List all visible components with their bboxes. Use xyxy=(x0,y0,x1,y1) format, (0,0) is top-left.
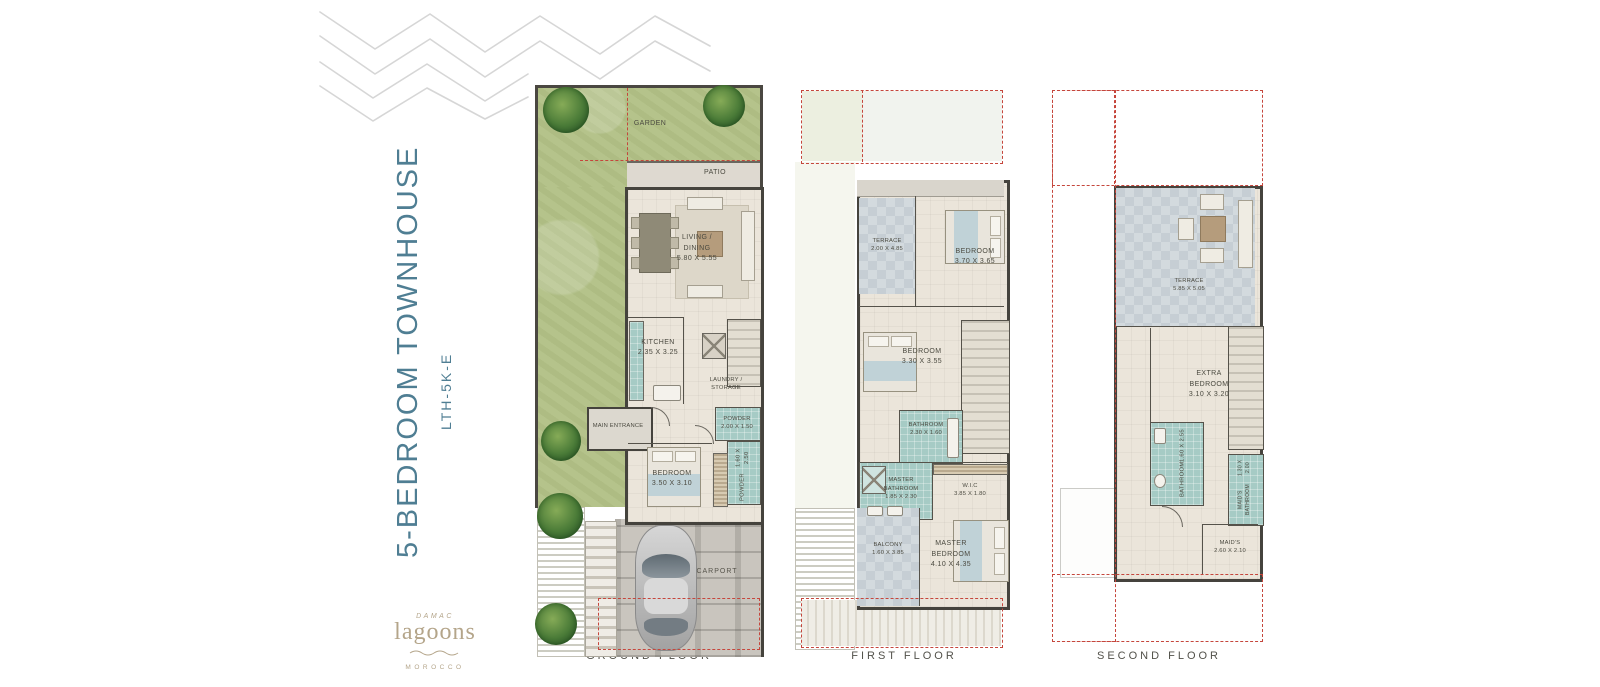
room-label: BEDROOM xyxy=(653,469,692,480)
stove-icon xyxy=(653,385,681,401)
chair-icon xyxy=(631,257,640,269)
room-dim: 2.60 X 2.10 xyxy=(1214,547,1246,555)
room-label: POWDER xyxy=(723,415,750,423)
stairs xyxy=(961,320,1010,454)
open-to-below-divider xyxy=(862,90,863,162)
bedroom1-wall-b xyxy=(859,306,1004,307)
room-dim: 3.10 X 3.20 xyxy=(1189,390,1229,401)
room-label: CARPORT xyxy=(696,567,737,578)
armchair-icon xyxy=(1200,194,1224,210)
roof-edge xyxy=(857,180,1004,197)
room-label: MASTER BATHROOM xyxy=(875,476,927,493)
damac-lagoons-logo: DAMAC lagoons MOROCCO xyxy=(390,613,480,671)
tree-icon xyxy=(535,603,577,645)
room-label: BATHROOM xyxy=(909,421,944,429)
dining-table-icon xyxy=(639,213,671,273)
page-title: 5-BEDROOM TOWNHOUSE xyxy=(392,168,425,558)
room-label: MAIN ENTRANCE xyxy=(593,422,644,430)
room-label: EXTRA BEDROOM xyxy=(1178,369,1240,390)
first-floor-plan: TERRACE 2.00 X 4.85 BEDROOM 3.70 X 3.65 … xyxy=(795,88,1013,650)
sink-icon xyxy=(867,506,883,516)
room-dim: 3.85 X 1.80 xyxy=(954,490,986,498)
room-label: KITCHEN xyxy=(641,338,675,349)
tree-icon xyxy=(537,493,583,539)
sofa-icon xyxy=(687,197,723,210)
room-label: BATHROOM xyxy=(1179,462,1188,497)
room-dim: 3.50 X 3.10 xyxy=(652,479,692,490)
plot-dashed-line-horizontal xyxy=(580,160,760,161)
room-label: MASTER BEDROOM xyxy=(921,539,981,560)
room-label: LIVING / DINING xyxy=(668,233,726,254)
plot-dashed-left xyxy=(1052,90,1116,642)
chair-icon xyxy=(631,237,640,249)
room-label: W.I.C xyxy=(962,482,977,490)
sink-icon xyxy=(1154,428,1166,444)
toilet-icon xyxy=(1154,474,1166,488)
room-label: GARDEN xyxy=(634,119,666,130)
room-dim: 3.70 X 3.65 xyxy=(955,257,995,268)
room-label: POWDER xyxy=(739,473,748,501)
room-dim: 1.60 X 2.55 xyxy=(1179,429,1188,462)
sofa-icon xyxy=(741,211,755,281)
kitchen-counter xyxy=(629,321,644,401)
room-dim: 5.80 X 5.55 xyxy=(677,254,717,265)
logo-wave-icon xyxy=(409,649,461,657)
room-label: TERRACE xyxy=(1174,277,1203,285)
second-floor-caption: SECOND FLOOR xyxy=(1050,650,1268,662)
room-label: BEDROOM xyxy=(956,247,995,258)
outdoor-table-icon xyxy=(1200,216,1226,242)
chair-icon xyxy=(631,217,640,229)
open-to-below-dashed xyxy=(801,90,1003,164)
room-dim: 1.60 X 2.50 xyxy=(734,443,751,473)
room-label: TERRACE xyxy=(872,237,901,245)
room-dim: 1.30 X 2.00 xyxy=(1238,456,1253,479)
first-floor-caption: FIRST FLOOR xyxy=(795,650,1013,662)
sofa-icon xyxy=(1238,200,1253,268)
armchair-icon xyxy=(1178,218,1194,240)
plot-dashed-bottom xyxy=(1052,574,1263,642)
room-label: MAID'S xyxy=(1220,539,1241,547)
room-terrace-2 xyxy=(1116,188,1255,327)
room-dim: 2.00 X 4.85 xyxy=(871,245,903,253)
tree-icon xyxy=(543,87,589,133)
pergola-dashed-boundary xyxy=(801,598,1003,648)
room-label: BALCONY xyxy=(873,541,902,549)
tree-icon xyxy=(703,85,745,127)
second-floor-plan: TERRACE 5.85 X 5.05 EXTRA BEDROOM 3.10 X… xyxy=(1050,88,1268,650)
wardrobe xyxy=(933,464,1008,475)
room-dim: 4.10 X 4.35 xyxy=(931,560,971,571)
room-label: LAUNDRY / STORAGE xyxy=(695,376,757,393)
unit-code: LTH-5K-E xyxy=(438,300,454,430)
logo-region-text: MOROCCO xyxy=(390,664,480,671)
ground-floor-plan: PATIO GARDEN LIVING / DINING 5.80 X 5.55… xyxy=(535,85,763,657)
tree-icon xyxy=(541,421,581,461)
wardrobe xyxy=(713,453,728,507)
room-label: MAID'S BATHROOM xyxy=(1238,479,1253,520)
sofa-icon xyxy=(687,285,723,298)
room-dim: 2.00 X 1.50 xyxy=(721,423,753,431)
room-dim: 5.85 X 5.05 xyxy=(1173,285,1205,293)
armchair-icon xyxy=(1200,248,1224,263)
room-dim: 2.30 X 1.60 xyxy=(910,429,942,437)
room-dim: 2.35 X 3.25 xyxy=(638,348,678,359)
storage-closet xyxy=(702,333,726,359)
carport-dashed-boundary xyxy=(598,598,760,650)
bedroom1-wall xyxy=(915,196,916,306)
sink-icon xyxy=(887,506,903,516)
room-label: BEDROOM xyxy=(903,347,942,358)
room-dim: 1.85 X 2.30 xyxy=(885,493,917,501)
room-label: PATIO xyxy=(704,168,726,179)
room-dim: 3.30 X 3.55 xyxy=(902,357,942,368)
logo-name-text: lagoons xyxy=(390,620,480,644)
chair-icon xyxy=(670,217,679,229)
room-dim: 1.60 X 3.85 xyxy=(872,549,904,557)
